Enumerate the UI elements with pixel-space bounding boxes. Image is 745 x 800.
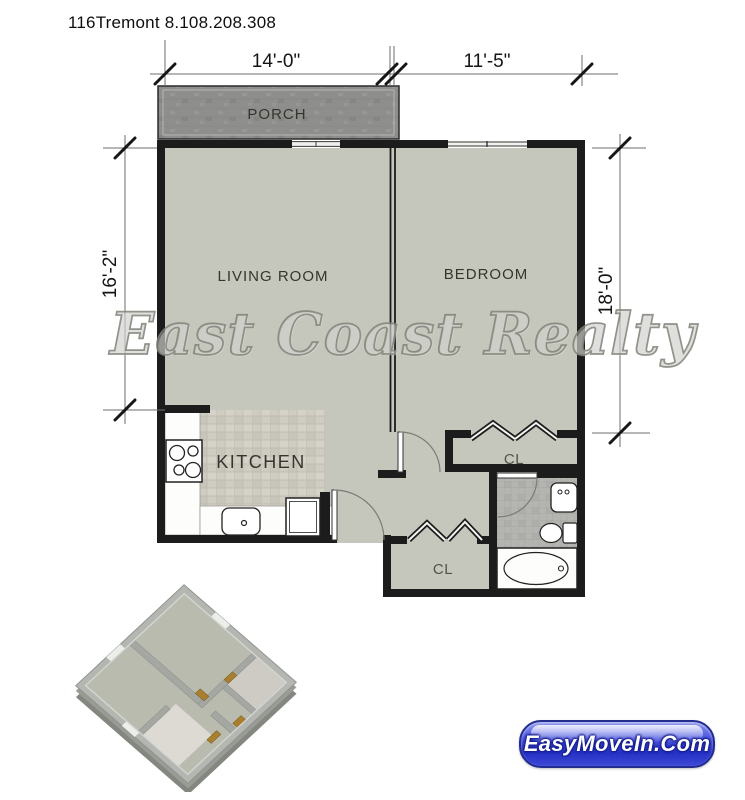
kitchen-sink <box>222 508 260 535</box>
bathroom-left-wall <box>489 472 497 589</box>
entry-wall-stub <box>320 492 330 540</box>
toilet <box>540 523 577 543</box>
dimension-top-right: 11'-5" <box>464 51 511 72</box>
bathtub <box>497 548 577 589</box>
bedroom-closet-label: CL <box>504 451 524 468</box>
kitchen-wall-stub <box>165 405 210 413</box>
floorplan-page: 116Tremont 8.108.208.308 <box>0 0 745 800</box>
dimension-right: 18'-0" <box>596 267 617 315</box>
porch-area: PORCH <box>158 86 399 139</box>
isometric-3d-floorplan-thumbnail <box>56 580 316 792</box>
easymovein-badge-label: EasyMoveIn.Com <box>524 731 710 757</box>
kitchen-label: KITCHEN <box>216 452 306 472</box>
stove <box>166 440 202 482</box>
living-room-label: LIVING ROOM <box>217 268 328 285</box>
easymovein-badge[interactable]: EasyMoveIn.Com <box>519 720 715 768</box>
dimension-left: 16'-2" <box>100 250 121 298</box>
porch-label: PORCH <box>247 106 306 123</box>
refrigerator <box>286 498 320 536</box>
bathroom-sink <box>551 483 577 512</box>
entry-closet-label: CL <box>433 561 453 578</box>
dimension-top-left: 14'-0" <box>252 51 300 72</box>
bedroom-label: BEDROOM <box>444 266 529 283</box>
